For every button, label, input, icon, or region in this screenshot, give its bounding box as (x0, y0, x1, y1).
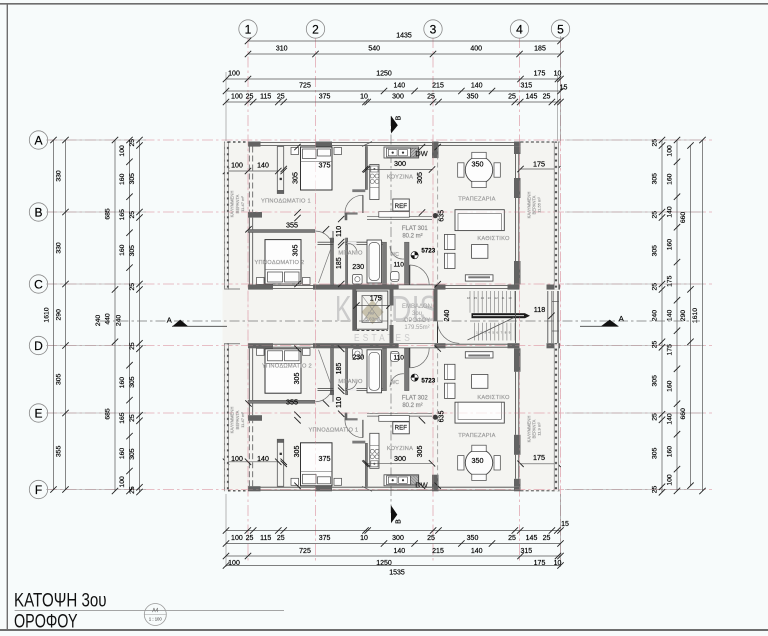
svg-text:175: 175 (533, 453, 545, 462)
svg-text:15: 15 (561, 521, 569, 528)
svg-text:A: A (167, 316, 172, 325)
svg-text:290: 290 (55, 309, 62, 321)
svg-text:10: 10 (360, 94, 368, 101)
svg-text:10: 10 (360, 535, 368, 542)
svg-text:DW: DW (415, 481, 428, 490)
svg-text:240: 240 (116, 315, 123, 327)
svg-text:11: 11 (501, 296, 504, 300)
svg-text:305: 305 (129, 448, 136, 460)
svg-text:440: 440 (105, 313, 112, 325)
svg-text:160: 160 (119, 448, 126, 460)
svg-text:80.2 m²: 80.2 m² (402, 234, 422, 240)
svg-text:2: 2 (312, 22, 319, 36)
svg-text:660: 660 (680, 212, 687, 224)
svg-text:F: F (35, 483, 42, 497)
svg-text:C: C (34, 277, 43, 291)
svg-text:ΥΠΝΟΔΩΜΑΤΙΟ 1: ΥΠΝΟΔΩΜΑΤΙΟ 1 (261, 199, 311, 205)
svg-text:140: 140 (393, 83, 405, 90)
svg-text:4: 4 (516, 22, 523, 36)
svg-text:25: 25 (129, 139, 136, 147)
svg-text:115: 115 (260, 535, 271, 542)
svg-text:685: 685 (105, 208, 112, 220)
svg-text:REF: REF (395, 425, 408, 432)
svg-text:100: 100 (119, 476, 126, 488)
svg-text:5: 5 (557, 22, 564, 36)
svg-text:330: 330 (55, 242, 62, 254)
svg-text:375: 375 (319, 535, 331, 542)
svg-text:118: 118 (534, 305, 545, 314)
svg-text:25: 25 (129, 342, 136, 350)
svg-text:ΕΜΒΑΔΟΝ: ΕΜΒΑΔΟΝ (402, 304, 432, 310)
svg-text:DW: DW (415, 149, 428, 158)
svg-text:ΚΑΘΙΣΤΙΚΟ: ΚΑΘΙΣΤΙΚΟ (477, 236, 510, 242)
svg-text:305: 305 (55, 373, 62, 385)
svg-text:ΚΟΥΖΙΝΑ: ΚΟΥΖΙΝΑ (387, 174, 413, 180)
svg-text:215: 215 (432, 83, 444, 90)
svg-text:1250: 1250 (376, 71, 392, 78)
svg-text:ΥΠΝΟΔΩΜΑΤΙΟ 2: ΥΠΝΟΔΩΜΑΤΙΟ 2 (255, 260, 305, 266)
svg-text:1610: 1610 (44, 307, 51, 322)
svg-text:110: 110 (393, 355, 404, 362)
svg-text:240: 240 (444, 310, 451, 322)
svg-text:175: 175 (666, 344, 673, 356)
svg-text:300: 300 (394, 159, 406, 168)
svg-text:100: 100 (228, 560, 240, 567)
svg-text:175: 175 (534, 560, 546, 567)
svg-text:ESTATES: ESTATES (354, 332, 413, 344)
svg-text:ΚΟΥΖΙΝΑ: ΚΟΥΖΙΝΑ (387, 446, 413, 452)
svg-text:11.47 m²: 11.47 m² (240, 196, 245, 212)
svg-text:B: B (34, 205, 42, 219)
svg-text:305: 305 (294, 373, 301, 385)
svg-text:100: 100 (119, 145, 126, 157)
svg-text:305: 305 (417, 172, 424, 184)
svg-text:635: 635 (438, 210, 445, 222)
svg-text:175: 175 (534, 71, 546, 78)
svg-text:140: 140 (393, 548, 405, 555)
svg-text:400: 400 (470, 46, 482, 53)
svg-text:1435: 1435 (396, 33, 412, 40)
svg-text:25: 25 (129, 211, 136, 219)
svg-text:100: 100 (228, 71, 240, 78)
svg-text:5.63m²: 5.63m² (365, 317, 380, 322)
svg-text:10: 10 (554, 71, 562, 78)
svg-text:ΤΡΑΠΕΖΑΡΙΑ: ΤΡΑΠΕΖΑΡΙΑ (458, 433, 495, 439)
svg-text:240: 240 (95, 315, 102, 327)
svg-text:330: 330 (55, 170, 62, 182)
svg-text:305: 305 (651, 173, 658, 185)
svg-text:115: 115 (260, 94, 271, 101)
svg-text:ΥΠΝΟΔΩΜΑΤΙΟ 1: ΥΠΝΟΔΩΜΑΤΙΟ 1 (309, 428, 359, 434)
svg-text:14: 14 (481, 296, 485, 300)
svg-text:685: 685 (105, 408, 112, 420)
svg-text:100: 100 (666, 474, 673, 486)
svg-text:25: 25 (651, 139, 658, 147)
svg-text:175: 175 (370, 293, 382, 302)
svg-text:165: 165 (119, 412, 126, 424)
svg-text:11.47 m²: 11.47 m² (240, 412, 245, 428)
svg-text:355: 355 (286, 398, 298, 407)
svg-text:ΚΑΘΙΣΤΙΚΟ: ΚΑΘΙΣΤΙΚΟ (477, 395, 510, 401)
svg-text:305: 305 (129, 173, 136, 185)
svg-text:A: A (34, 133, 42, 147)
svg-text:305: 305 (129, 245, 136, 257)
svg-text:175: 175 (666, 275, 673, 287)
svg-text:1250: 1250 (376, 560, 392, 567)
svg-text:240: 240 (651, 310, 658, 322)
svg-text:ΚΑΤΟΨΗ 3ου: ΚΑΤΟΨΗ 3ου (14, 591, 107, 612)
svg-text:350: 350 (467, 94, 479, 101)
svg-text:179.55m²: 179.55m² (404, 325, 429, 331)
svg-text:140: 140 (666, 206, 673, 218)
svg-text:1 : 100: 1 : 100 (149, 617, 162, 622)
svg-text:305: 305 (651, 375, 658, 387)
svg-text:ΟΡΟΦΟΥ: ΟΡΟΦΟΥ (404, 318, 431, 324)
svg-text:305: 305 (293, 172, 300, 184)
svg-text:140: 140 (471, 83, 483, 90)
svg-text:140: 140 (257, 456, 269, 463)
svg-text:350: 350 (472, 456, 484, 465)
svg-text:ΚΑΛΥΜΜΕΝΗ: ΚΑΛΥΜΜΕΝΗ (230, 191, 235, 218)
svg-text:100: 100 (231, 163, 243, 170)
svg-text:300: 300 (392, 94, 404, 101)
svg-text:25: 25 (427, 94, 435, 101)
svg-text:3ου: 3ου (412, 311, 422, 317)
svg-text:145: 145 (526, 535, 538, 542)
svg-text:3: 3 (430, 22, 437, 36)
svg-text:10: 10 (508, 296, 512, 300)
svg-text:ΟΡΟΦΟΥ: ΟΡΟΦΟΥ (14, 612, 78, 633)
svg-text:160: 160 (119, 377, 126, 389)
svg-text:25: 25 (543, 535, 551, 542)
svg-text:B: B (396, 115, 403, 120)
svg-text:D: D (34, 339, 43, 353)
svg-text:160: 160 (666, 173, 673, 185)
svg-text:25: 25 (543, 94, 551, 101)
svg-text:160: 160 (119, 173, 126, 185)
svg-text:635: 635 (438, 411, 445, 423)
svg-text:305: 305 (651, 245, 658, 257)
svg-text:140: 140 (257, 163, 269, 170)
svg-text:25: 25 (246, 535, 254, 542)
svg-text:25: 25 (508, 94, 516, 101)
svg-text:K: K (335, 288, 352, 329)
svg-text:5723: 5723 (421, 247, 435, 254)
svg-text:175: 175 (533, 159, 545, 168)
svg-text:310: 310 (276, 46, 288, 53)
svg-text:660: 660 (680, 408, 687, 420)
svg-text:13: 13 (488, 296, 492, 300)
svg-text:290: 290 (680, 310, 687, 322)
svg-text:375: 375 (319, 94, 331, 101)
svg-text:11.9 m²: 11.9 m² (537, 422, 542, 436)
svg-text:230: 230 (352, 352, 364, 361)
svg-text:15: 15 (560, 85, 568, 92)
svg-text:185: 185 (336, 257, 343, 269)
svg-text:ΜΠΑΝΙΟ: ΜΠΑΝΙΟ (338, 250, 363, 256)
svg-text:110: 110 (336, 397, 343, 408)
svg-text:110: 110 (393, 262, 404, 269)
svg-text:145: 145 (526, 94, 538, 101)
svg-text:25: 25 (129, 414, 136, 422)
svg-text:140: 140 (666, 310, 673, 322)
svg-text:185: 185 (336, 363, 343, 375)
svg-text:215: 215 (432, 548, 444, 555)
svg-text:100: 100 (231, 456, 243, 463)
svg-text:305: 305 (651, 447, 658, 459)
svg-text:305: 305 (293, 245, 300, 257)
svg-text:WC: WC (391, 380, 400, 386)
svg-text:5723: 5723 (421, 378, 435, 385)
svg-text:315: 315 (520, 83, 532, 90)
svg-text:WC: WC (391, 252, 400, 258)
svg-text:REF: REF (395, 203, 408, 210)
svg-text:25: 25 (651, 413, 658, 421)
svg-text:ΜΠΑΝΙΟ: ΜΠΑΝΙΟ (338, 379, 363, 385)
svg-text:FLAT 301: FLAT 301 (402, 226, 428, 232)
svg-text:305: 305 (129, 376, 136, 388)
svg-text:ΗΘ: ΗΘ (368, 311, 374, 316)
svg-text:100: 100 (666, 145, 673, 157)
svg-text:B: B (395, 519, 402, 524)
svg-text:1: 1 (245, 22, 252, 36)
svg-text:E: E (34, 406, 42, 420)
svg-text:ΤΡΑΠΕΖΑΡΙΑ: ΤΡΑΠΕΖΑΡΙΑ (458, 197, 495, 203)
svg-text:25: 25 (508, 535, 516, 542)
svg-text:185: 185 (534, 46, 546, 53)
svg-text:305: 305 (417, 446, 424, 458)
svg-text:140: 140 (666, 413, 673, 425)
svg-text:350: 350 (467, 535, 479, 542)
svg-text:540: 540 (368, 46, 380, 53)
svg-text:FLAT 302: FLAT 302 (402, 396, 428, 402)
svg-text:165: 165 (119, 209, 126, 221)
svg-text:305: 305 (294, 446, 301, 458)
svg-text:100: 100 (231, 535, 243, 542)
svg-text:300: 300 (394, 454, 406, 463)
svg-text:ΥΠΝΟΔΩΜΑΤΙΟ 2: ΥΠΝΟΔΩΜΑΤΙΟ 2 (262, 364, 312, 370)
svg-text:160: 160 (666, 239, 673, 251)
svg-text:ΚΑΛΥΜΜΕΝΗ: ΚΑΛΥΜΜΕΝΗ (230, 407, 235, 434)
svg-text:110: 110 (336, 226, 343, 237)
svg-text:725: 725 (299, 548, 311, 555)
svg-text:25: 25 (277, 535, 285, 542)
svg-text:25: 25 (651, 211, 658, 219)
svg-text:25: 25 (246, 94, 254, 101)
svg-text:25: 25 (651, 283, 658, 291)
svg-text:140: 140 (471, 548, 483, 555)
svg-text:25: 25 (277, 94, 285, 101)
svg-text:25: 25 (129, 486, 136, 494)
svg-text:100: 100 (231, 94, 243, 101)
svg-text:230: 230 (352, 262, 364, 271)
svg-text:A4: A4 (152, 608, 158, 614)
svg-text:355: 355 (286, 220, 298, 229)
svg-text:25: 25 (651, 341, 658, 349)
svg-text:375: 375 (319, 161, 331, 170)
svg-text:A: A (619, 314, 624, 323)
svg-text:25: 25 (129, 283, 136, 291)
svg-text:11.55 m²: 11.55 m² (537, 197, 542, 213)
svg-text:355: 355 (55, 445, 62, 457)
svg-text:1535: 1535 (389, 570, 405, 577)
svg-text:25: 25 (651, 486, 658, 494)
svg-text:350: 350 (472, 160, 484, 169)
svg-text:80.2 m²: 80.2 m² (402, 403, 422, 409)
svg-text:160: 160 (666, 446, 673, 458)
svg-text:16: 16 (467, 296, 471, 300)
svg-text:725: 725 (299, 83, 311, 90)
svg-text:15: 15 (474, 296, 478, 300)
svg-text:25: 25 (427, 535, 435, 542)
svg-text:160: 160 (666, 380, 673, 392)
svg-text:12: 12 (494, 296, 498, 300)
svg-text:160: 160 (119, 244, 126, 256)
svg-text:300: 300 (392, 535, 404, 542)
svg-text:375: 375 (319, 454, 331, 463)
